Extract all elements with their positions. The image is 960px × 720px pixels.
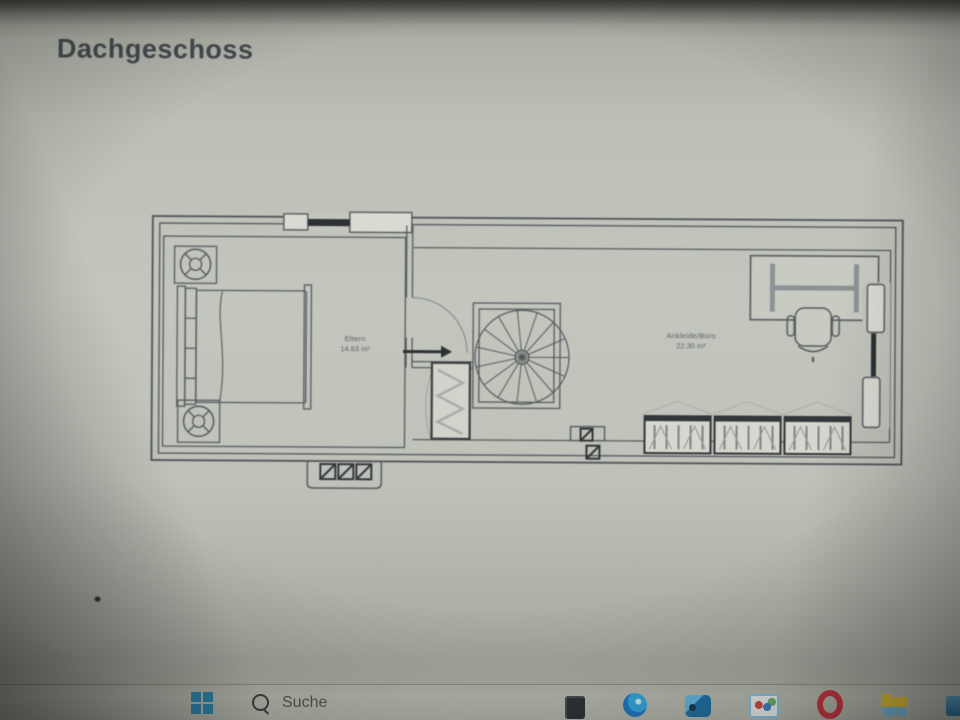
start-button[interactable]: [191, 692, 212, 713]
door-and-partition: [403, 226, 474, 368]
skylight-band: [307, 461, 381, 488]
search-icon: [252, 694, 269, 711]
blue-app-icon[interactable]: [946, 696, 960, 716]
wardrobes: [642, 401, 852, 454]
file-explorer-icon[interactable]: [881, 697, 908, 716]
wardrobe-unit: [712, 401, 782, 453]
blue-box-app-icon[interactable]: [685, 695, 711, 717]
taskbar: Suche: [0, 684, 960, 720]
office-chair: [787, 308, 839, 362]
nightstand-top: [174, 246, 216, 283]
entry-arrow-icon: [403, 346, 452, 358]
page-title: Dachgeschoss: [57, 33, 254, 65]
edge-browser-icon[interactable]: [623, 693, 647, 717]
room-name: Eltern: [322, 334, 388, 345]
pinned-apps: [565, 690, 960, 719]
room-label-ankleide: Ankleide/Büro 22.30 m²: [646, 331, 736, 352]
floor-plan: Eltern 14.63 m² Ankleide/Büro 22.30 m²: [149, 210, 909, 500]
vent-shaft: [570, 427, 604, 459]
dust-speck: [95, 597, 101, 602]
screen-content: Dachgeschoss: [0, 0, 960, 720]
windows-logo-icon: [191, 692, 201, 702]
search-placeholder: Suche: [282, 694, 327, 712]
room-label-eltern: Eltern 14.63 m²: [322, 334, 388, 355]
room-name: Ankleide/Büro: [646, 331, 736, 342]
dark-app-icon[interactable]: [565, 696, 585, 719]
wardrobe-unit: [782, 402, 852, 454]
dresser: [426, 363, 470, 440]
double-bed: [177, 284, 312, 409]
room-area: 14.63 m²: [322, 344, 388, 355]
spiral-staircase: [473, 303, 570, 409]
top-window: [284, 212, 412, 233]
room-area: 22.30 m²: [646, 341, 736, 352]
floor-plan-drawing: [149, 210, 909, 500]
roof-window: [862, 282, 891, 428]
wardrobe-unit: [642, 401, 712, 453]
photos-app-icon[interactable]: [749, 694, 779, 718]
double-bed-group: [173, 246, 311, 443]
monitor-photo: Dachgeschoss: [0, 0, 960, 720]
search-box[interactable]: Suche: [252, 690, 327, 715]
opera-browser-icon[interactable]: [817, 690, 843, 719]
desk-group: [750, 256, 879, 363]
